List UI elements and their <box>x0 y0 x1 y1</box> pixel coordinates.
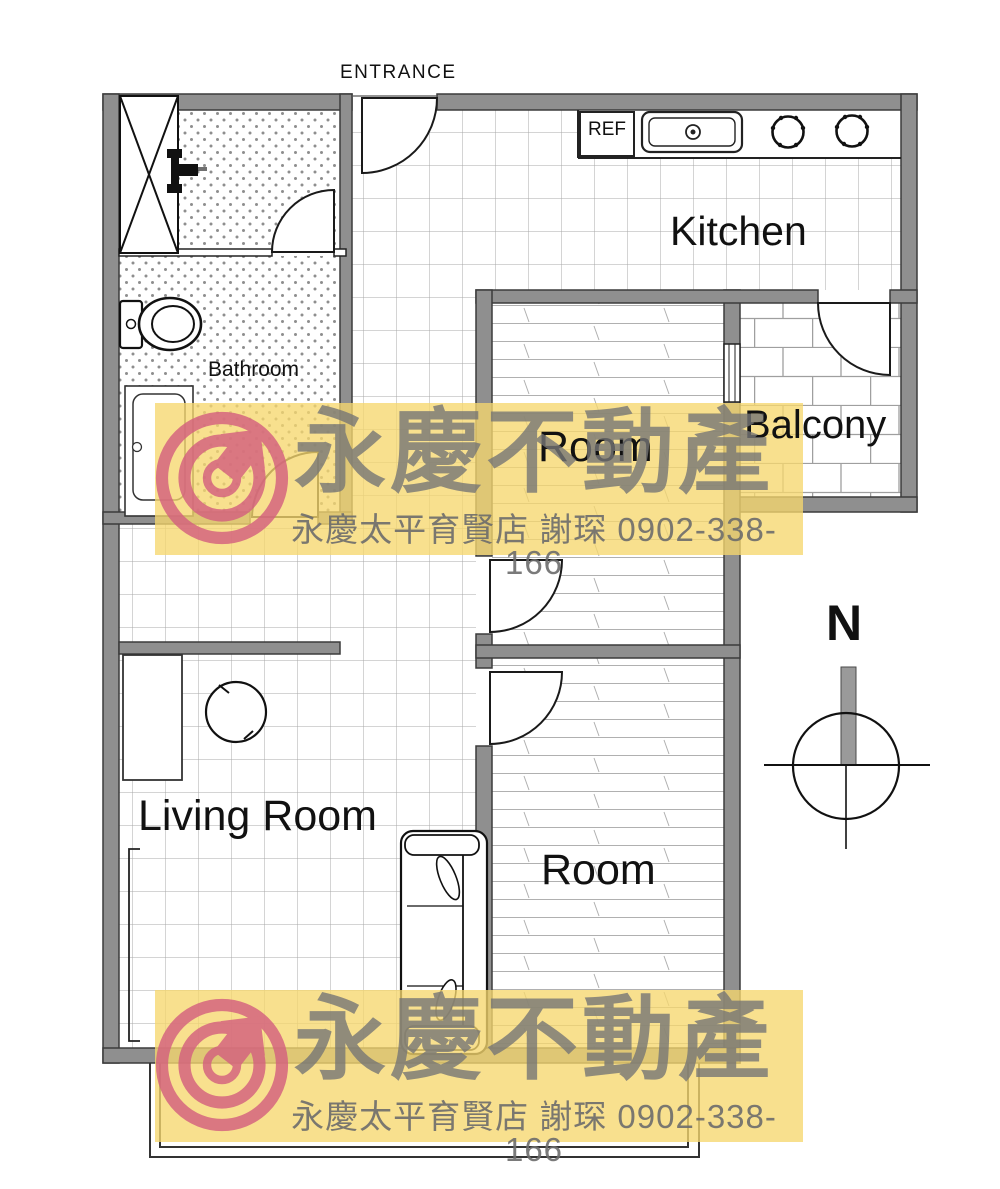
bottom-room-label: Room <box>541 849 656 892</box>
toilet-icon <box>120 298 201 350</box>
wall-left <box>103 94 119 1063</box>
watermark-band-bottom <box>155 990 803 1142</box>
wall-kitchen-divider-a <box>476 290 818 303</box>
round-table-icon <box>206 682 266 742</box>
living-room-label: Living Room <box>138 795 377 838</box>
compass-icon <box>764 667 930 849</box>
kitchen-label: Kitchen <box>670 211 807 252</box>
floor-plan-canvas: ENTRANCE Kitchen Bathroom Room Balcony L… <box>0 0 1000 1189</box>
wall-kitchen-divider-b <box>890 290 917 303</box>
compass-north-label: N <box>826 598 862 648</box>
wall-top-right <box>437 94 917 110</box>
refrigerator-label: REF <box>581 120 633 139</box>
bathroom-label: Bathroom <box>208 359 299 380</box>
center-room-label: Room <box>538 426 653 469</box>
balcony-label: Balcony <box>744 405 886 445</box>
balcony-window-icon <box>724 344 740 402</box>
wall-living-partial <box>119 642 340 654</box>
entrance-label: ENTRANCE <box>340 63 457 82</box>
shower-stall-icon <box>120 96 178 253</box>
sink-icon <box>642 112 742 152</box>
watermark-band-middle <box>155 403 803 555</box>
cabinet-icon <box>123 655 182 780</box>
wall-rooms-divider <box>476 645 740 658</box>
